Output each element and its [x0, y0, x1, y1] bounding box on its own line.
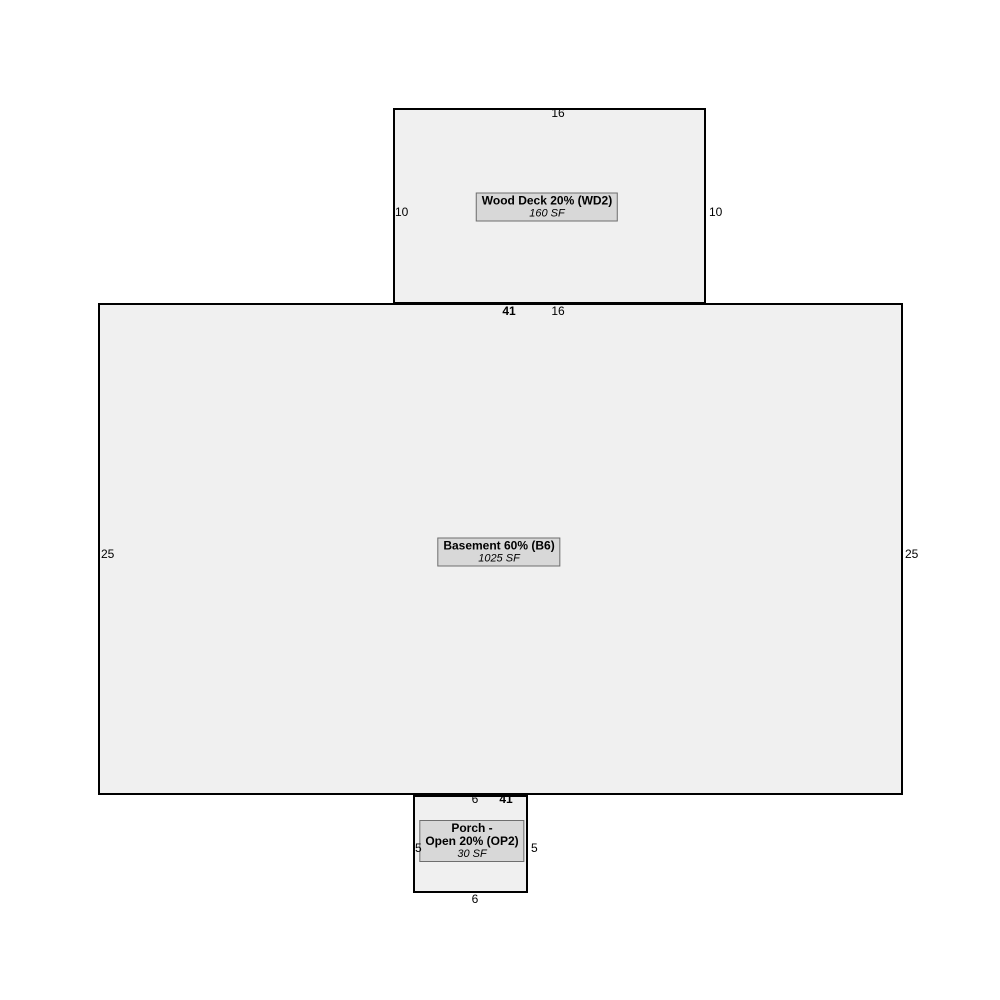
porch-label: Porch - Open 20% (OP2) 30 SF [419, 820, 524, 862]
dim-wood-deck-bottom: 16 [551, 304, 564, 318]
dim-porch-left: 5 [415, 841, 422, 855]
dim-basement-top: 41 [502, 304, 515, 318]
porch-title-line2: Open 20% (OP2) [425, 835, 518, 848]
dim-porch-right: 5 [531, 841, 538, 855]
dim-basement-left: 25 [101, 547, 114, 561]
dim-basement-right: 25 [905, 547, 918, 561]
dim-basement-bottom: 41 [499, 792, 512, 806]
property-sketch: Wood Deck 20% (WD2) 160 SF Basement 60% … [0, 0, 1000, 1000]
wood-deck-label: Wood Deck 20% (WD2) 160 SF [476, 193, 618, 222]
porch-sf: 30 SF [425, 848, 518, 860]
wood-deck-title: Wood Deck 20% (WD2) [482, 195, 612, 208]
wood-deck-sf: 160 SF [482, 208, 612, 220]
dim-wood-deck-right: 10 [709, 205, 722, 219]
basement-sf: 1025 SF [443, 553, 554, 565]
basement-label: Basement 60% (B6) 1025 SF [437, 538, 560, 567]
dim-wood-deck-left: 10 [395, 205, 408, 219]
dim-porch-top: 6 [472, 792, 479, 806]
dim-wood-deck-top: 16 [551, 106, 564, 120]
basement-title: Basement 60% (B6) [443, 540, 554, 553]
dim-porch-bottom: 6 [472, 892, 479, 906]
